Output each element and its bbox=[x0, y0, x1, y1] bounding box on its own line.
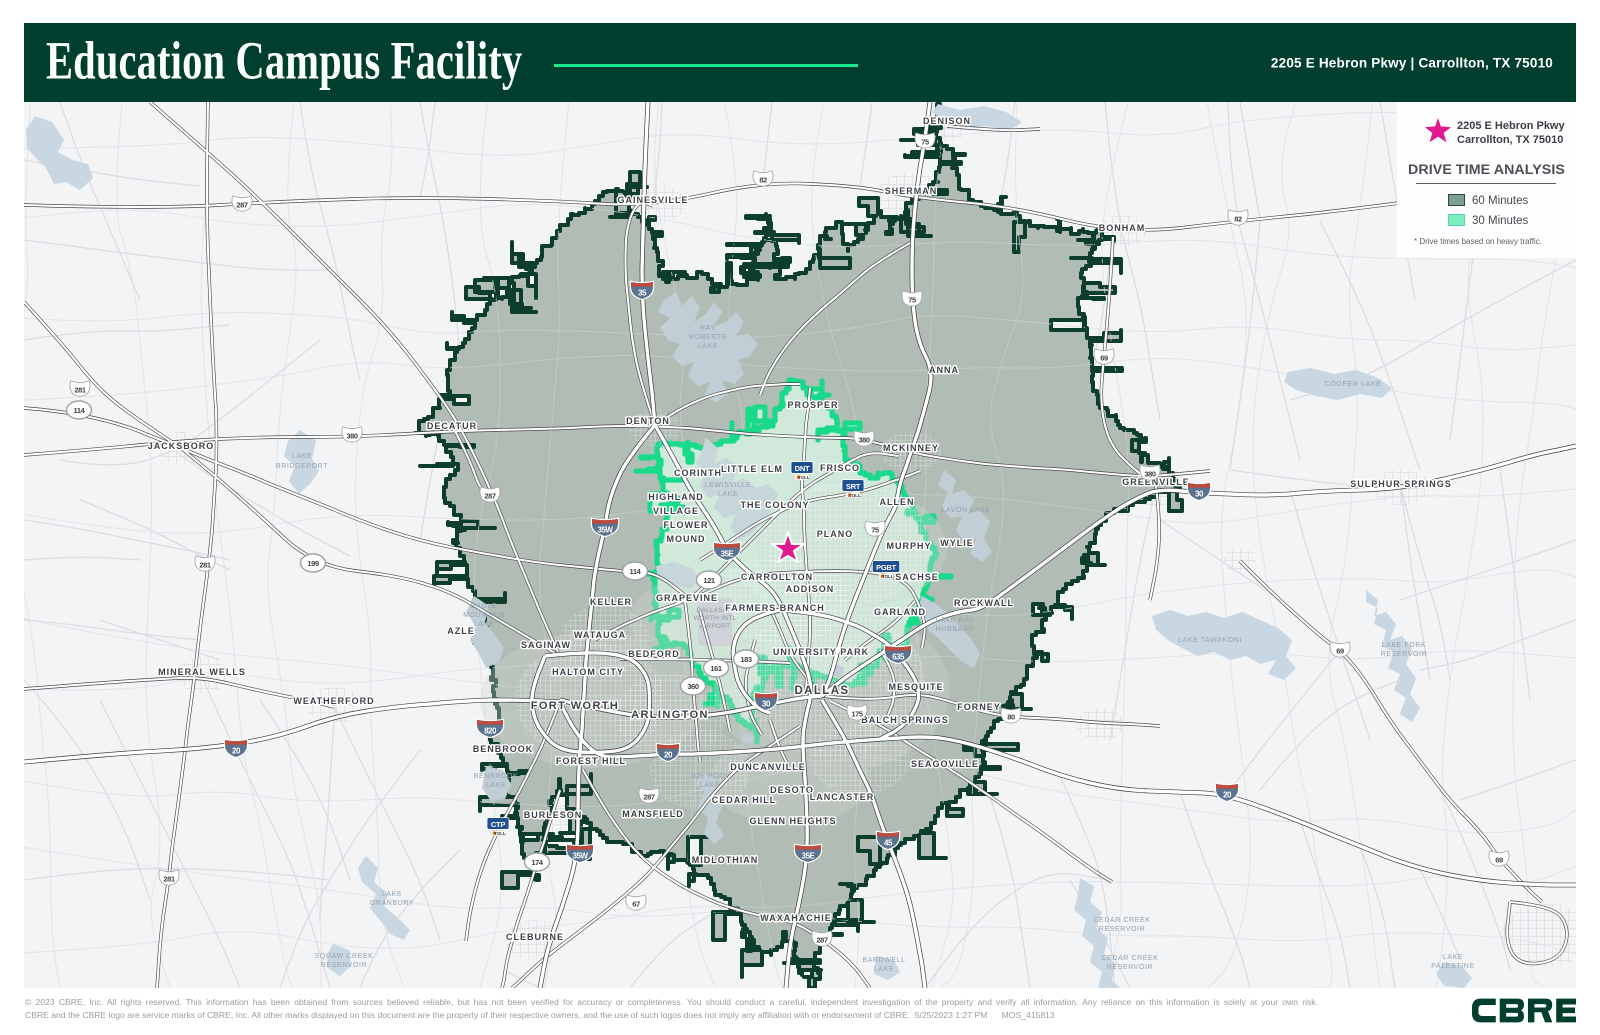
svg-text:AIRPORT: AIRPORT bbox=[700, 623, 731, 630]
svg-text:FLOWER: FLOWER bbox=[664, 520, 709, 530]
svg-text:30: 30 bbox=[762, 700, 771, 709]
svg-text:35E: 35E bbox=[802, 852, 816, 861]
svg-text:380: 380 bbox=[346, 431, 358, 440]
svg-text:BENBROOK: BENBROOK bbox=[474, 773, 518, 780]
svg-text:RAY: RAY bbox=[700, 325, 716, 332]
svg-text:BENBROOK: BENBROOK bbox=[473, 744, 534, 754]
svg-text:281: 281 bbox=[163, 874, 175, 883]
svg-text:MOUNTAIN: MOUNTAIN bbox=[463, 612, 505, 619]
svg-text:380: 380 bbox=[858, 435, 870, 444]
svg-text:SACHSE: SACHSE bbox=[895, 572, 939, 582]
svg-text:GAINESVILLE: GAINESVILLE bbox=[617, 195, 688, 205]
svg-text:LAKE: LAKE bbox=[700, 782, 720, 789]
svg-text:20: 20 bbox=[664, 751, 673, 760]
svg-text:SAGINAW: SAGINAW bbox=[521, 640, 571, 650]
svg-text:MESQUITE: MESQUITE bbox=[888, 682, 943, 692]
svg-text:69: 69 bbox=[1495, 855, 1503, 864]
svg-text:WATAUGA: WATAUGA bbox=[574, 630, 626, 640]
svg-text:VILLAGE: VILLAGE bbox=[653, 506, 699, 516]
svg-text:TOLL: TOLL bbox=[798, 475, 810, 480]
svg-text:380: 380 bbox=[1144, 469, 1156, 478]
svg-text:635: 635 bbox=[892, 653, 905, 662]
svg-text:183: 183 bbox=[740, 655, 752, 664]
svg-text:MURPHY: MURPHY bbox=[886, 541, 931, 551]
svg-text:PLANO: PLANO bbox=[817, 529, 854, 539]
svg-text:AZLE: AZLE bbox=[447, 626, 475, 636]
svg-text:80: 80 bbox=[1007, 712, 1015, 721]
svg-text:TOLL: TOLL bbox=[882, 574, 894, 579]
svg-text:LAKE: LAKE bbox=[718, 491, 738, 498]
svg-text:MOUND: MOUND bbox=[667, 534, 706, 544]
svg-text:GARLAND: GARLAND bbox=[874, 607, 926, 617]
svg-text:CEDAR CREEK: CEDAR CREEK bbox=[1093, 917, 1150, 924]
svg-text:174: 174 bbox=[531, 858, 544, 867]
svg-text:LEWISVILLE: LEWISVILLE bbox=[705, 482, 752, 489]
svg-text:UNIVERSITY PARK: UNIVERSITY PARK bbox=[773, 647, 869, 657]
svg-text:SRT: SRT bbox=[846, 482, 861, 491]
svg-text:161: 161 bbox=[710, 664, 722, 673]
svg-text:DESOTO: DESOTO bbox=[770, 785, 814, 795]
svg-text:LAKE TAWAKONI: LAKE TAWAKONI bbox=[1178, 637, 1242, 644]
svg-text:FORNEY: FORNEY bbox=[957, 702, 1001, 712]
svg-text:ALLEN: ALLEN bbox=[880, 497, 915, 507]
svg-text:82: 82 bbox=[1234, 214, 1242, 223]
svg-text:114: 114 bbox=[630, 567, 642, 576]
svg-text:BONHAM: BONHAM bbox=[1099, 223, 1146, 233]
svg-text:LITTLE ELM: LITTLE ELM bbox=[721, 464, 783, 474]
svg-text:75: 75 bbox=[921, 137, 929, 146]
svg-text:CTP: CTP bbox=[491, 820, 506, 829]
svg-text:LAVON LAKE: LAVON LAKE bbox=[941, 507, 990, 514]
svg-text:75: 75 bbox=[908, 295, 916, 304]
svg-text:121: 121 bbox=[703, 576, 715, 585]
svg-text:20: 20 bbox=[1223, 791, 1232, 800]
svg-text:DALLAS: DALLAS bbox=[794, 685, 849, 697]
svg-text:360: 360 bbox=[687, 682, 699, 691]
svg-text:HUBBARD: HUBBARD bbox=[936, 626, 974, 633]
svg-text:CLEBURNE: CLEBURNE bbox=[506, 932, 564, 942]
svg-text:69: 69 bbox=[1100, 353, 1108, 362]
svg-text:30: 30 bbox=[1195, 490, 1204, 499]
svg-text:KELLER: KELLER bbox=[590, 597, 632, 607]
svg-text:BARDWELL: BARDWELL bbox=[862, 957, 905, 964]
svg-text:PALESTINE: PALESTINE bbox=[1431, 963, 1474, 970]
svg-text:ARLINGTON: ARLINGTON bbox=[631, 709, 709, 721]
svg-text:114: 114 bbox=[74, 406, 86, 415]
svg-text:BRIDGEPORT: BRIDGEPORT bbox=[276, 463, 328, 470]
svg-text:35E: 35E bbox=[721, 550, 735, 559]
svg-text:THE COLONY: THE COLONY bbox=[740, 500, 809, 510]
svg-text:SEAGOVILLE: SEAGOVILLE bbox=[911, 759, 979, 769]
svg-text:45: 45 bbox=[884, 839, 893, 848]
svg-text:35: 35 bbox=[638, 289, 647, 298]
svg-text:TOLL: TOLL bbox=[494, 831, 506, 836]
svg-text:35W: 35W bbox=[573, 852, 589, 861]
svg-text:GRAPEVINE: GRAPEVINE bbox=[656, 593, 718, 603]
svg-text:ANNA: ANNA bbox=[929, 365, 959, 375]
svg-text:820: 820 bbox=[484, 727, 497, 736]
svg-text:COOPER LAKE: COOPER LAKE bbox=[1325, 381, 1382, 388]
svg-text:EAGLE: EAGLE bbox=[471, 603, 497, 610]
svg-text:RESERVOIR: RESERVOIR bbox=[321, 962, 368, 969]
svg-text:GLENN HEIGHTS: GLENN HEIGHTS bbox=[749, 816, 836, 826]
svg-text:175: 175 bbox=[851, 709, 863, 718]
svg-text:MIDLOTHIAN: MIDLOTHIAN bbox=[692, 855, 759, 865]
svg-text:ROCKWALL: ROCKWALL bbox=[954, 598, 1014, 608]
svg-text:FOREST HILL: FOREST HILL bbox=[556, 756, 626, 766]
svg-text:RESERVOIR: RESERVOIR bbox=[1381, 651, 1428, 658]
svg-text:281: 281 bbox=[74, 385, 86, 394]
svg-text:HIGHLAND: HIGHLAND bbox=[648, 492, 704, 502]
svg-text:FRISCO: FRISCO bbox=[820, 463, 860, 473]
svg-text:281: 281 bbox=[199, 560, 211, 569]
svg-text:HALTOM CITY: HALTOM CITY bbox=[552, 667, 624, 677]
svg-text:BEDFORD: BEDFORD bbox=[628, 649, 680, 659]
svg-text:TOLL: TOLL bbox=[849, 493, 861, 498]
svg-text:20: 20 bbox=[232, 747, 241, 756]
svg-text:SHERMAN: SHERMAN bbox=[885, 186, 938, 196]
svg-text:35W: 35W bbox=[598, 526, 614, 535]
svg-text:287: 287 bbox=[816, 935, 828, 944]
svg-text:DUNCANVILLE: DUNCANVILLE bbox=[730, 762, 806, 772]
svg-text:199: 199 bbox=[307, 559, 319, 568]
svg-text:RESERVOIR: RESERVOIR bbox=[1099, 926, 1146, 933]
svg-text:FARMERS BRANCH: FARMERS BRANCH bbox=[725, 603, 825, 613]
svg-text:JOE POOL: JOE POOL bbox=[690, 773, 730, 780]
svg-text:LAKE FORK: LAKE FORK bbox=[1382, 642, 1427, 649]
svg-text:LANCASTER: LANCASTER bbox=[810, 792, 875, 802]
svg-text:GRANBURY: GRANBURY bbox=[370, 900, 414, 907]
svg-text:DENISON: DENISON bbox=[923, 116, 971, 126]
svg-text:287: 287 bbox=[643, 792, 655, 801]
svg-text:CORINTH: CORINTH bbox=[674, 468, 722, 478]
svg-text:82: 82 bbox=[759, 175, 767, 184]
svg-text:287: 287 bbox=[484, 491, 496, 500]
svg-text:SQUAW CREEK: SQUAW CREEK bbox=[315, 953, 374, 960]
svg-text:69: 69 bbox=[1336, 646, 1344, 655]
svg-text:DECATUR: DECATUR bbox=[427, 421, 477, 431]
svg-text:LAKE: LAKE bbox=[486, 782, 506, 789]
svg-text:JACKSBORO: JACKSBORO bbox=[148, 441, 215, 451]
svg-text:67: 67 bbox=[632, 899, 640, 908]
svg-text:LAKE: LAKE bbox=[474, 621, 494, 628]
svg-text:PROSPER: PROSPER bbox=[787, 400, 838, 410]
svg-text:PGBT: PGBT bbox=[876, 563, 897, 572]
svg-text:CARROLLTON: CARROLLTON bbox=[741, 572, 813, 582]
svg-text:RESERVOIR: RESERVOIR bbox=[1107, 964, 1154, 971]
svg-text:MINERAL WELLS: MINERAL WELLS bbox=[158, 667, 246, 677]
svg-text:BURLESON: BURLESON bbox=[524, 810, 583, 820]
svg-text:LAKE: LAKE bbox=[1443, 954, 1463, 961]
svg-text:WORTH INTL: WORTH INTL bbox=[693, 615, 736, 622]
svg-text:WYLIE: WYLIE bbox=[940, 538, 974, 548]
svg-text:LAKE: LAKE bbox=[292, 453, 312, 460]
svg-text:FORT WORTH: FORT WORTH bbox=[531, 700, 620, 712]
svg-text:LAKE: LAKE bbox=[698, 343, 718, 350]
svg-text:WEATHERFORD: WEATHERFORD bbox=[293, 696, 374, 706]
svg-text:ROBERTS: ROBERTS bbox=[689, 334, 727, 341]
svg-text:CEDAR CREEK: CEDAR CREEK bbox=[1101, 955, 1158, 962]
svg-text:BALCH SPRINGS: BALCH SPRINGS bbox=[861, 715, 949, 725]
svg-text:287: 287 bbox=[236, 200, 248, 209]
svg-text:LAKE: LAKE bbox=[874, 966, 894, 973]
svg-text:DENTON: DENTON bbox=[626, 416, 670, 426]
svg-text:WAXAHACHIE: WAXAHACHIE bbox=[760, 913, 832, 923]
svg-text:MCKINNEY: MCKINNEY bbox=[883, 443, 939, 453]
svg-text:MANSFIELD: MANSFIELD bbox=[622, 809, 684, 819]
svg-text:DNT: DNT bbox=[795, 464, 810, 473]
svg-text:CEDAR HILL: CEDAR HILL bbox=[712, 795, 777, 805]
svg-text:ADDISON: ADDISON bbox=[786, 584, 835, 594]
svg-text:LAKE: LAKE bbox=[382, 891, 402, 898]
svg-text:75: 75 bbox=[871, 525, 879, 534]
svg-text:SULPHUR SPRINGS: SULPHUR SPRINGS bbox=[1350, 479, 1452, 489]
svg-text:LAKE RAY: LAKE RAY bbox=[936, 617, 975, 624]
